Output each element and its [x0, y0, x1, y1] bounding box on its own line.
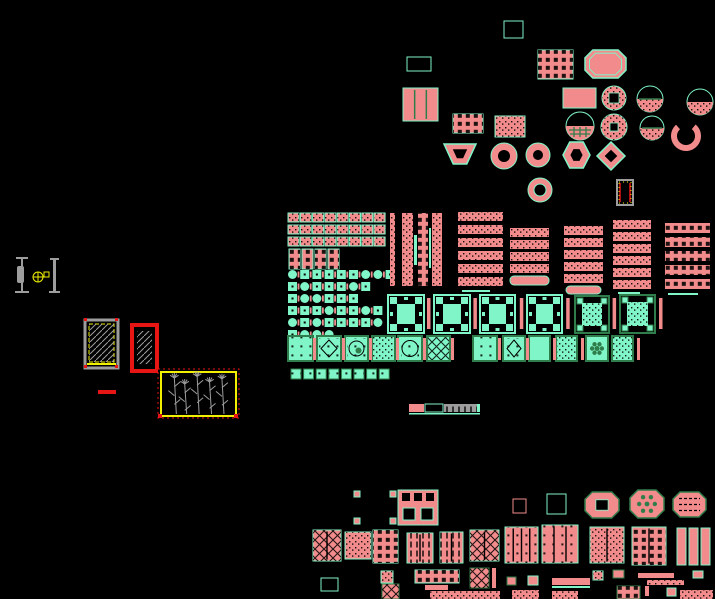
- ceiling-tile-block[interactable]: [398, 336, 422, 361]
- ceiling-tile-block[interactable]: [288, 336, 313, 361]
- sword-block[interactable]: [425, 404, 443, 412]
- mini-panel-block[interactable]: [374, 237, 385, 246]
- panel-divider-bar[interactable]: [566, 298, 570, 329]
- column-block[interactable]: [390, 213, 395, 286]
- round-medallion-block[interactable]: [640, 116, 664, 140]
- window-frame-block[interactable]: [442, 493, 481, 523]
- mini-tile-block[interactable]: [354, 369, 364, 379]
- door-panel-block[interactable]: [701, 528, 710, 565]
- handle-symbol-block[interactable]: [44, 272, 49, 277]
- block-fragment[interactable]: [552, 591, 578, 599]
- mini-panel-block[interactable]: [300, 225, 311, 234]
- corner-dot[interactable]: [84, 318, 87, 321]
- beam-block[interactable]: [510, 240, 549, 249]
- panel-divider-bar[interactable]: [613, 298, 617, 329]
- beam-block[interactable]: [458, 277, 503, 286]
- block-fragment[interactable]: [425, 585, 448, 590]
- mini-panel-block[interactable]: [325, 225, 336, 234]
- block-fragment[interactable]: [647, 580, 684, 585]
- facade-window[interactable]: [414, 493, 422, 501]
- beam-block[interactable]: [510, 276, 549, 285]
- ceiling-tile-block[interactable]: [317, 336, 341, 361]
- column-block[interactable]: [418, 213, 428, 286]
- door-panel-block[interactable]: [407, 533, 433, 563]
- window-frame-block[interactable]: [539, 14, 578, 45]
- beam-block[interactable]: [415, 570, 459, 583]
- facade-window[interactable]: [402, 493, 410, 501]
- door-panel-block[interactable]: [373, 530, 398, 563]
- block-fragment[interactable]: [680, 590, 713, 599]
- table-panel-block[interactable]: [527, 295, 562, 333]
- ring-block[interactable]: [491, 143, 517, 169]
- mini-panel-block[interactable]: [337, 213, 348, 222]
- mini-panel-block[interactable]: [337, 237, 348, 246]
- sword-underline[interactable]: [409, 413, 480, 415]
- door-panel-block[interactable]: [345, 532, 371, 559]
- door-panel-block[interactable]: [505, 527, 538, 563]
- beam-block[interactable]: [613, 256, 651, 265]
- facade-window[interactable]: [426, 493, 434, 501]
- block-fragment[interactable]: [492, 568, 496, 588]
- block-fragment[interactable]: [382, 584, 399, 599]
- mini-tile-block[interactable]: [304, 369, 314, 379]
- octagon-panel-block[interactable]: [630, 490, 664, 518]
- ceiling-tile-block[interactable]: [345, 336, 368, 361]
- mini-panel-block[interactable]: [374, 213, 385, 222]
- window-frame-block[interactable]: [453, 88, 483, 110]
- beam-block[interactable]: [458, 264, 503, 273]
- beam-block[interactable]: [665, 279, 710, 289]
- door-panel-block[interactable]: [470, 530, 499, 561]
- ceiling-tile-block[interactable]: [473, 336, 497, 361]
- mini-panel-block[interactable]: [362, 213, 373, 222]
- hexagon-block[interactable]: [563, 142, 590, 168]
- handle-symbol-block[interactable]: [33, 272, 43, 282]
- corner-dot[interactable]: [115, 318, 118, 321]
- mini-panel-block[interactable]: [374, 225, 385, 234]
- block-fragment[interactable]: [507, 577, 516, 585]
- lamp-stand-elevation[interactable]: [50, 258, 59, 260]
- mini-tile-block[interactable]: [316, 369, 326, 379]
- ceiling-tile-block[interactable]: [586, 336, 608, 361]
- beam-block[interactable]: [458, 251, 503, 260]
- block-fragment[interactable]: [512, 590, 539, 599]
- table-panel-block[interactable]: [388, 295, 424, 333]
- block-fragment[interactable]: [613, 570, 624, 578]
- panel-divider-bar[interactable]: [659, 298, 663, 329]
- lamp-stand-elevation[interactable]: [15, 291, 29, 293]
- beam-block[interactable]: [613, 232, 651, 241]
- mini-door-block[interactable]: [289, 249, 300, 269]
- round-medallion-block[interactable]: [687, 89, 713, 115]
- beam-block[interactable]: [613, 268, 651, 277]
- panel-divider-bar[interactable]: [520, 298, 524, 329]
- ceiling-tile-block[interactable]: [529, 336, 550, 361]
- block-fragment[interactable]: [528, 576, 538, 585]
- lattice-panel-block[interactable]: [538, 50, 573, 79]
- door-panel-block[interactable]: [313, 530, 341, 561]
- mini-panel-block[interactable]: [350, 225, 361, 234]
- sword-block[interactable]: [444, 404, 477, 412]
- table-panel-block[interactable]: [575, 296, 609, 333]
- window-frame-block[interactable]: [446, 50, 481, 78]
- beam-block[interactable]: [613, 220, 651, 229]
- window-frame-block[interactable]: [443, 13, 485, 45]
- mini-panel-block[interactable]: [350, 213, 361, 222]
- block-fragment[interactable]: [381, 571, 393, 583]
- mini-door-block[interactable]: [315, 249, 326, 269]
- donut-block[interactable]: [528, 178, 552, 202]
- ceiling-tile-block[interactable]: [372, 336, 395, 361]
- facade-window[interactable]: [403, 508, 415, 520]
- beam-block[interactable]: [458, 238, 503, 247]
- block-fragment[interactable]: [645, 586, 649, 596]
- mini-tile-block[interactable]: [329, 369, 339, 379]
- ceiling-tile-block[interactable]: [503, 336, 525, 361]
- mirror-glass[interactable]: [137, 331, 152, 364]
- basket-medallion-block[interactable]: [566, 112, 594, 140]
- beam-block[interactable]: [665, 223, 710, 233]
- beam-block[interactable]: [510, 264, 549, 273]
- mini-tile-block[interactable]: [379, 369, 389, 379]
- mini-panel-block[interactable]: [325, 213, 336, 222]
- mini-panel-block[interactable]: [313, 237, 324, 246]
- beam-underline[interactable]: [618, 292, 640, 294]
- mirror-glass[interactable]: [89, 324, 114, 362]
- beam-block[interactable]: [458, 212, 503, 221]
- mini-panel-block[interactable]: [362, 225, 373, 234]
- beam-block[interactable]: [665, 251, 710, 261]
- red-bar-block[interactable]: [98, 390, 116, 394]
- octagon-panel-block[interactable]: [673, 492, 706, 517]
- lamp-stand-elevation[interactable]: [17, 266, 24, 283]
- column-trim[interactable]: [414, 235, 417, 265]
- beam-block[interactable]: [613, 280, 651, 289]
- mini-panel-block[interactable]: [288, 237, 299, 246]
- octagon-panel-block[interactable]: [585, 492, 619, 518]
- lamp-stand-elevation[interactable]: [49, 291, 60, 293]
- round-medallion-block[interactable]: [637, 86, 663, 112]
- door-panel-block[interactable]: [677, 528, 686, 565]
- corner-dot[interactable]: [115, 365, 118, 368]
- beam-underline[interactable]: [462, 290, 490, 292]
- door-panel-block[interactable]: [440, 532, 463, 563]
- beam-block[interactable]: [665, 265, 710, 275]
- beam-block[interactable]: [564, 250, 603, 259]
- plain-panel-block[interactable]: [563, 88, 596, 108]
- door-panel-block[interactable]: [542, 525, 578, 563]
- beam-underline[interactable]: [668, 293, 698, 295]
- window-frame-block[interactable]: [395, 50, 443, 78]
- block-fragment[interactable]: [552, 578, 590, 585]
- mini-panel-block[interactable]: [288, 225, 299, 234]
- mini-panel-block[interactable]: [300, 237, 311, 246]
- column-trim[interactable]: [429, 228, 431, 268]
- ring-block[interactable]: [526, 143, 550, 167]
- lamp-stand-elevation[interactable]: [53, 260, 56, 292]
- panel-divider-bar[interactable]: [473, 298, 477, 329]
- door-panel-block[interactable]: [632, 527, 666, 565]
- door-panel-block[interactable]: [590, 527, 624, 563]
- beam-block[interactable]: [510, 228, 549, 237]
- window-frame-block[interactable]: [490, 50, 534, 79]
- block-fragment[interactable]: [638, 573, 674, 578]
- mini-panel-block[interactable]: [337, 225, 348, 234]
- ceiling-tile-block[interactable]: [427, 336, 450, 361]
- facade-window[interactable]: [421, 508, 433, 520]
- block-fragment[interactable]: [693, 571, 703, 578]
- beam-block[interactable]: [510, 252, 549, 261]
- sword-block[interactable]: [477, 404, 480, 412]
- cad-viewport: [0, 0, 715, 599]
- ceiling-tile-block[interactable]: [556, 336, 577, 361]
- mini-panel-block[interactable]: [325, 237, 336, 246]
- round-medallion-block[interactable]: [601, 114, 627, 140]
- beam-block[interactable]: [564, 226, 603, 235]
- column-block[interactable]: [432, 213, 442, 286]
- sword-block[interactable]: [409, 404, 424, 412]
- mini-tile-block[interactable]: [341, 369, 351, 379]
- column-block[interactable]: [402, 213, 413, 286]
- slat-panel-block[interactable]: [403, 88, 438, 121]
- ornament-grid-row[interactable]: [288, 270, 395, 279]
- block-fragment[interactable]: [667, 588, 676, 596]
- mini-door-block[interactable]: [302, 249, 313, 269]
- beam-block[interactable]: [458, 225, 503, 234]
- lamp-stand-elevation[interactable]: [16, 257, 28, 259]
- cad-drawing-canvas: [0, 0, 715, 599]
- mini-panel-block[interactable]: [350, 237, 361, 246]
- beam-block[interactable]: [564, 262, 603, 271]
- mini-tile-block[interactable]: [367, 369, 377, 379]
- beam-block[interactable]: [566, 286, 601, 294]
- corner-dot[interactable]: [84, 365, 87, 368]
- mini-panel-block[interactable]: [313, 213, 324, 222]
- table-panel-block[interactable]: [480, 295, 515, 333]
- beam-block[interactable]: [613, 244, 651, 253]
- block-fragment[interactable]: [617, 586, 640, 599]
- lattice-panel-block[interactable]: [495, 116, 525, 137]
- corner-dot[interactable]: [158, 414, 162, 418]
- lattice-panel-block[interactable]: [453, 114, 483, 133]
- mini-panel-block[interactable]: [313, 225, 324, 234]
- panel-divider-bar[interactable]: [427, 298, 431, 329]
- corner-dot[interactable]: [234, 414, 238, 418]
- beam-block[interactable]: [665, 237, 710, 247]
- ceiling-tile-block[interactable]: [612, 336, 633, 361]
- octagon-panel-block[interactable]: [585, 50, 626, 78]
- table-panel-block[interactable]: [620, 295, 655, 333]
- block-fragment[interactable]: [593, 571, 603, 580]
- table-panel-block[interactable]: [434, 295, 470, 333]
- mini-panel-block[interactable]: [300, 213, 311, 222]
- block-fragment[interactable]: [430, 591, 500, 599]
- mini-panel-block[interactable]: [362, 237, 373, 246]
- beam-block[interactable]: [564, 274, 603, 283]
- mirror-sill[interactable]: [87, 363, 116, 365]
- block-fragment[interactable]: [470, 568, 489, 588]
- beam-block[interactable]: [564, 238, 603, 247]
- block-fragment[interactable]: [552, 586, 590, 588]
- mini-tile-block[interactable]: [291, 369, 301, 379]
- mini-door-block[interactable]: [328, 249, 339, 269]
- mini-panel-block[interactable]: [288, 213, 299, 222]
- round-medallion-block[interactable]: [602, 86, 626, 110]
- door-panel-block[interactable]: [689, 528, 698, 565]
